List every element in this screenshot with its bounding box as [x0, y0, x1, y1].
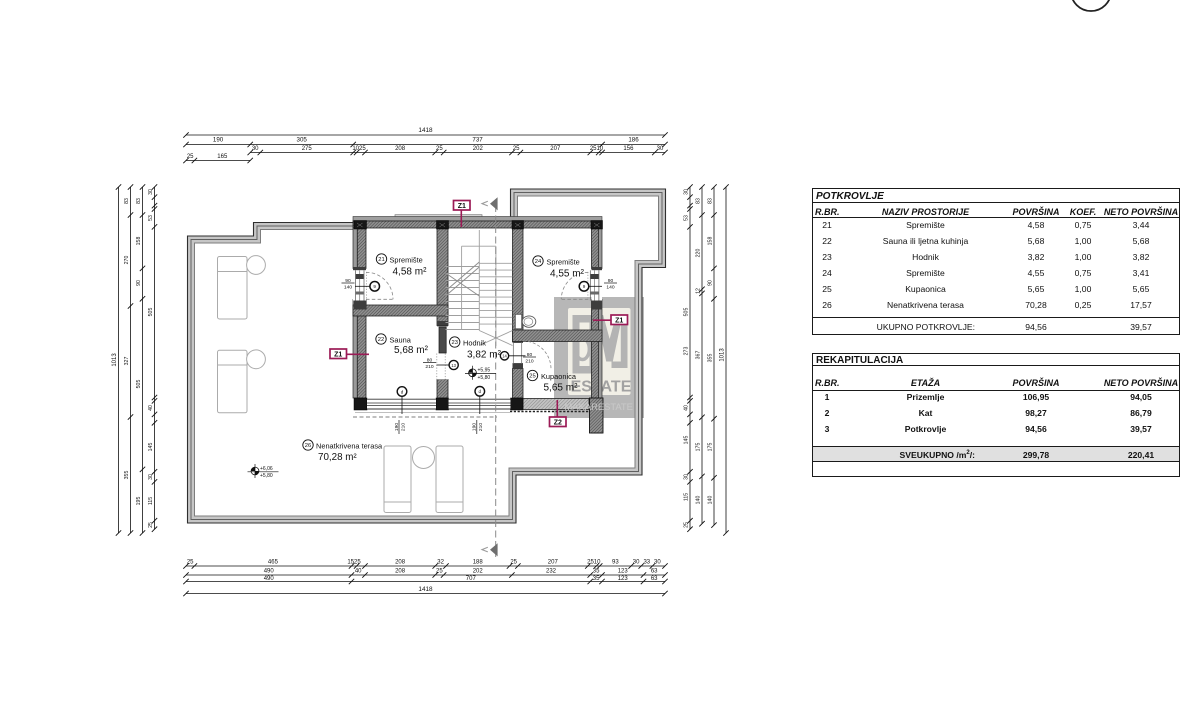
svg-text:210: 210 [525, 358, 533, 364]
svg-text:140: 140 [606, 284, 614, 290]
svg-text:275: 275 [302, 146, 313, 152]
svg-text:32: 32 [437, 560, 444, 566]
svg-text:25: 25 [436, 569, 443, 575]
svg-text:202: 202 [473, 146, 484, 152]
svg-text:1013: 1013 [719, 348, 725, 362]
svg-text:40: 40 [355, 569, 362, 575]
svg-text:30: 30 [654, 560, 661, 566]
svg-text:53: 53 [683, 215, 689, 221]
svg-text:207: 207 [548, 560, 559, 566]
svg-text:+5,80: +5,80 [260, 473, 273, 479]
svg-text:140: 140 [344, 284, 352, 290]
svg-text:1525: 1525 [347, 560, 361, 566]
svg-text:83: 83 [124, 198, 130, 204]
svg-text:4,55 m²: 4,55 m² [550, 269, 585, 280]
svg-text:83: 83 [707, 198, 713, 204]
svg-text:25: 25 [529, 374, 535, 380]
svg-text:210: 210 [425, 364, 433, 370]
svg-text:210: 210 [400, 423, 406, 431]
svg-text:156: 156 [623, 146, 634, 152]
svg-text:30: 30 [683, 189, 689, 195]
svg-text:490: 490 [264, 576, 275, 582]
svg-text:355: 355 [707, 354, 713, 363]
svg-text:63: 63 [651, 576, 658, 582]
svg-text:25: 25 [510, 560, 517, 566]
svg-text:140: 140 [707, 496, 713, 505]
svg-text:30: 30 [148, 189, 154, 195]
svg-text:737: 737 [472, 137, 483, 144]
svg-text:220: 220 [695, 249, 701, 258]
svg-text:90: 90 [136, 280, 142, 286]
svg-text:d: d [401, 389, 404, 394]
svg-text:208: 208 [395, 569, 406, 575]
svg-text:2510: 2510 [587, 560, 601, 566]
svg-text:+5,95: +5,95 [478, 368, 491, 374]
svg-text:707: 707 [466, 576, 477, 582]
svg-text:158: 158 [707, 237, 713, 246]
svg-text:210: 210 [478, 423, 484, 431]
svg-text:+5,80: +5,80 [478, 375, 491, 381]
svg-text:Kupaonica: Kupaonica [541, 372, 577, 381]
svg-text:25: 25 [683, 522, 689, 528]
svg-text:35: 35 [593, 569, 600, 575]
svg-text:1025: 1025 [352, 146, 366, 152]
svg-text:83: 83 [695, 198, 701, 204]
svg-text:30: 30 [148, 474, 154, 480]
svg-text:232: 232 [546, 569, 557, 575]
svg-text:505: 505 [683, 308, 689, 317]
svg-text:Z1: Z1 [334, 351, 342, 358]
svg-text:3,82 m²: 3,82 m² [467, 350, 502, 361]
svg-text:5,68 m²: 5,68 m² [394, 345, 429, 356]
svg-text:355: 355 [124, 471, 130, 480]
svg-text:123: 123 [618, 569, 629, 575]
svg-text:202: 202 [473, 569, 484, 575]
svg-text:505: 505 [136, 380, 142, 389]
svg-text:4,58 m²: 4,58 m² [393, 267, 428, 278]
svg-text:465: 465 [268, 560, 279, 566]
svg-text:26: 26 [305, 443, 311, 449]
svg-text:93: 93 [612, 560, 619, 566]
svg-text:207: 207 [550, 146, 561, 152]
svg-text:188: 188 [473, 560, 484, 566]
svg-text:63: 63 [651, 569, 658, 575]
svg-text:30: 30 [683, 474, 689, 480]
svg-text:53: 53 [148, 215, 154, 221]
svg-text:Z2: Z2 [554, 419, 562, 426]
svg-text:30: 30 [657, 146, 664, 152]
svg-text:208: 208 [395, 560, 406, 566]
svg-text:25: 25 [187, 154, 194, 160]
svg-text:490: 490 [264, 569, 275, 575]
svg-text:165: 165 [217, 154, 228, 160]
svg-text:30: 30 [633, 560, 640, 566]
svg-text:1013: 1013 [112, 353, 118, 367]
svg-text:9: 9 [583, 284, 586, 289]
svg-text:40: 40 [683, 405, 689, 411]
svg-text:123: 123 [618, 576, 629, 582]
svg-text:+6,06: +6,06 [260, 466, 273, 472]
svg-text:Z1: Z1 [615, 317, 623, 324]
svg-text:33: 33 [643, 560, 650, 566]
svg-text:273: 273 [683, 347, 689, 356]
svg-text:115: 115 [683, 493, 689, 501]
svg-text:Nenatkrivena terasa: Nenatkrivena terasa [316, 442, 383, 451]
svg-text:175: 175 [707, 443, 713, 452]
svg-text:145: 145 [683, 436, 689, 445]
svg-text:327: 327 [124, 357, 130, 366]
svg-text:Spremište: Spremište [547, 258, 580, 267]
svg-text:d: d [479, 389, 482, 394]
svg-text:186: 186 [628, 137, 639, 144]
svg-text:25: 25 [187, 560, 194, 566]
svg-text:158: 158 [136, 237, 142, 246]
svg-text:23: 23 [451, 340, 457, 346]
svg-text:70,28 m²: 70,28 m² [318, 452, 357, 463]
svg-text:9: 9 [373, 284, 376, 289]
svg-text:2510: 2510 [590, 146, 604, 152]
svg-text:Sauna: Sauna [390, 336, 412, 345]
svg-text:40: 40 [148, 405, 154, 411]
svg-text:175: 175 [695, 443, 701, 452]
svg-text:25: 25 [436, 146, 443, 152]
svg-text:14: 14 [502, 354, 507, 359]
svg-text:367: 367 [695, 351, 701, 360]
svg-text:Hodnik: Hodnik [463, 339, 486, 348]
svg-text:25: 25 [513, 146, 520, 152]
svg-text:83: 83 [136, 198, 142, 204]
svg-text:Z1: Z1 [458, 203, 466, 210]
svg-text:30: 30 [252, 146, 259, 152]
svg-text:270: 270 [124, 256, 130, 265]
svg-text:145: 145 [148, 443, 154, 452]
svg-text:13: 13 [451, 363, 456, 368]
svg-text:35: 35 [593, 576, 600, 582]
svg-text:195: 195 [136, 497, 142, 506]
svg-text:115: 115 [148, 497, 154, 505]
svg-text:90: 90 [707, 280, 713, 286]
svg-text:22: 22 [378, 337, 384, 343]
svg-text:24: 24 [535, 259, 542, 265]
svg-text:12: 12 [695, 288, 701, 294]
svg-text:305: 305 [297, 137, 308, 144]
svg-text:MAKARESTATE: MAKARESTATE [565, 401, 633, 412]
svg-text:21: 21 [378, 257, 384, 263]
svg-text:505: 505 [148, 308, 154, 317]
svg-text:5,65 m²: 5,65 m² [544, 383, 579, 394]
svg-text:1418: 1418 [418, 127, 433, 134]
svg-text:1418: 1418 [418, 586, 433, 593]
svg-text:208: 208 [395, 146, 406, 152]
svg-text:Spremište: Spremište [390, 256, 423, 265]
svg-text:190: 190 [213, 137, 224, 144]
svg-text:25: 25 [148, 522, 154, 528]
svg-text:140: 140 [695, 496, 701, 505]
